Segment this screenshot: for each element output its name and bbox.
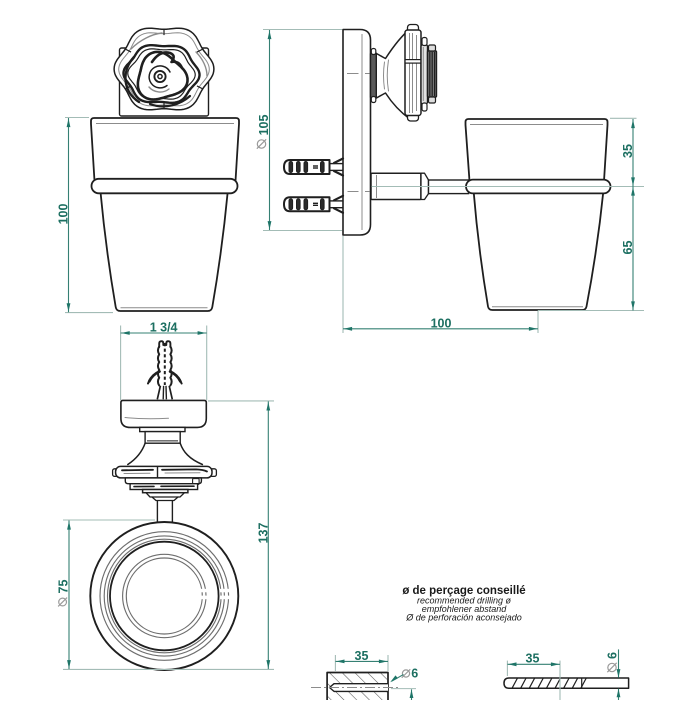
svg-text:75: 75 [57,580,71,594]
svg-text:137: 137 [256,523,270,544]
svg-text:35: 35 [526,652,540,666]
svg-text:100: 100 [57,204,71,225]
svg-text:Ø de perforación aconsejado: Ø de perforación aconsejado [405,613,522,623]
svg-text:6: 6 [606,652,620,659]
svg-text:105: 105 [257,115,271,136]
svg-text:35: 35 [621,144,635,158]
svg-text:1 3/4: 1 3/4 [150,320,178,334]
svg-text:65: 65 [621,241,635,255]
svg-text:100: 100 [431,316,452,330]
svg-text:35: 35 [355,649,369,663]
svg-text:6: 6 [411,667,418,681]
